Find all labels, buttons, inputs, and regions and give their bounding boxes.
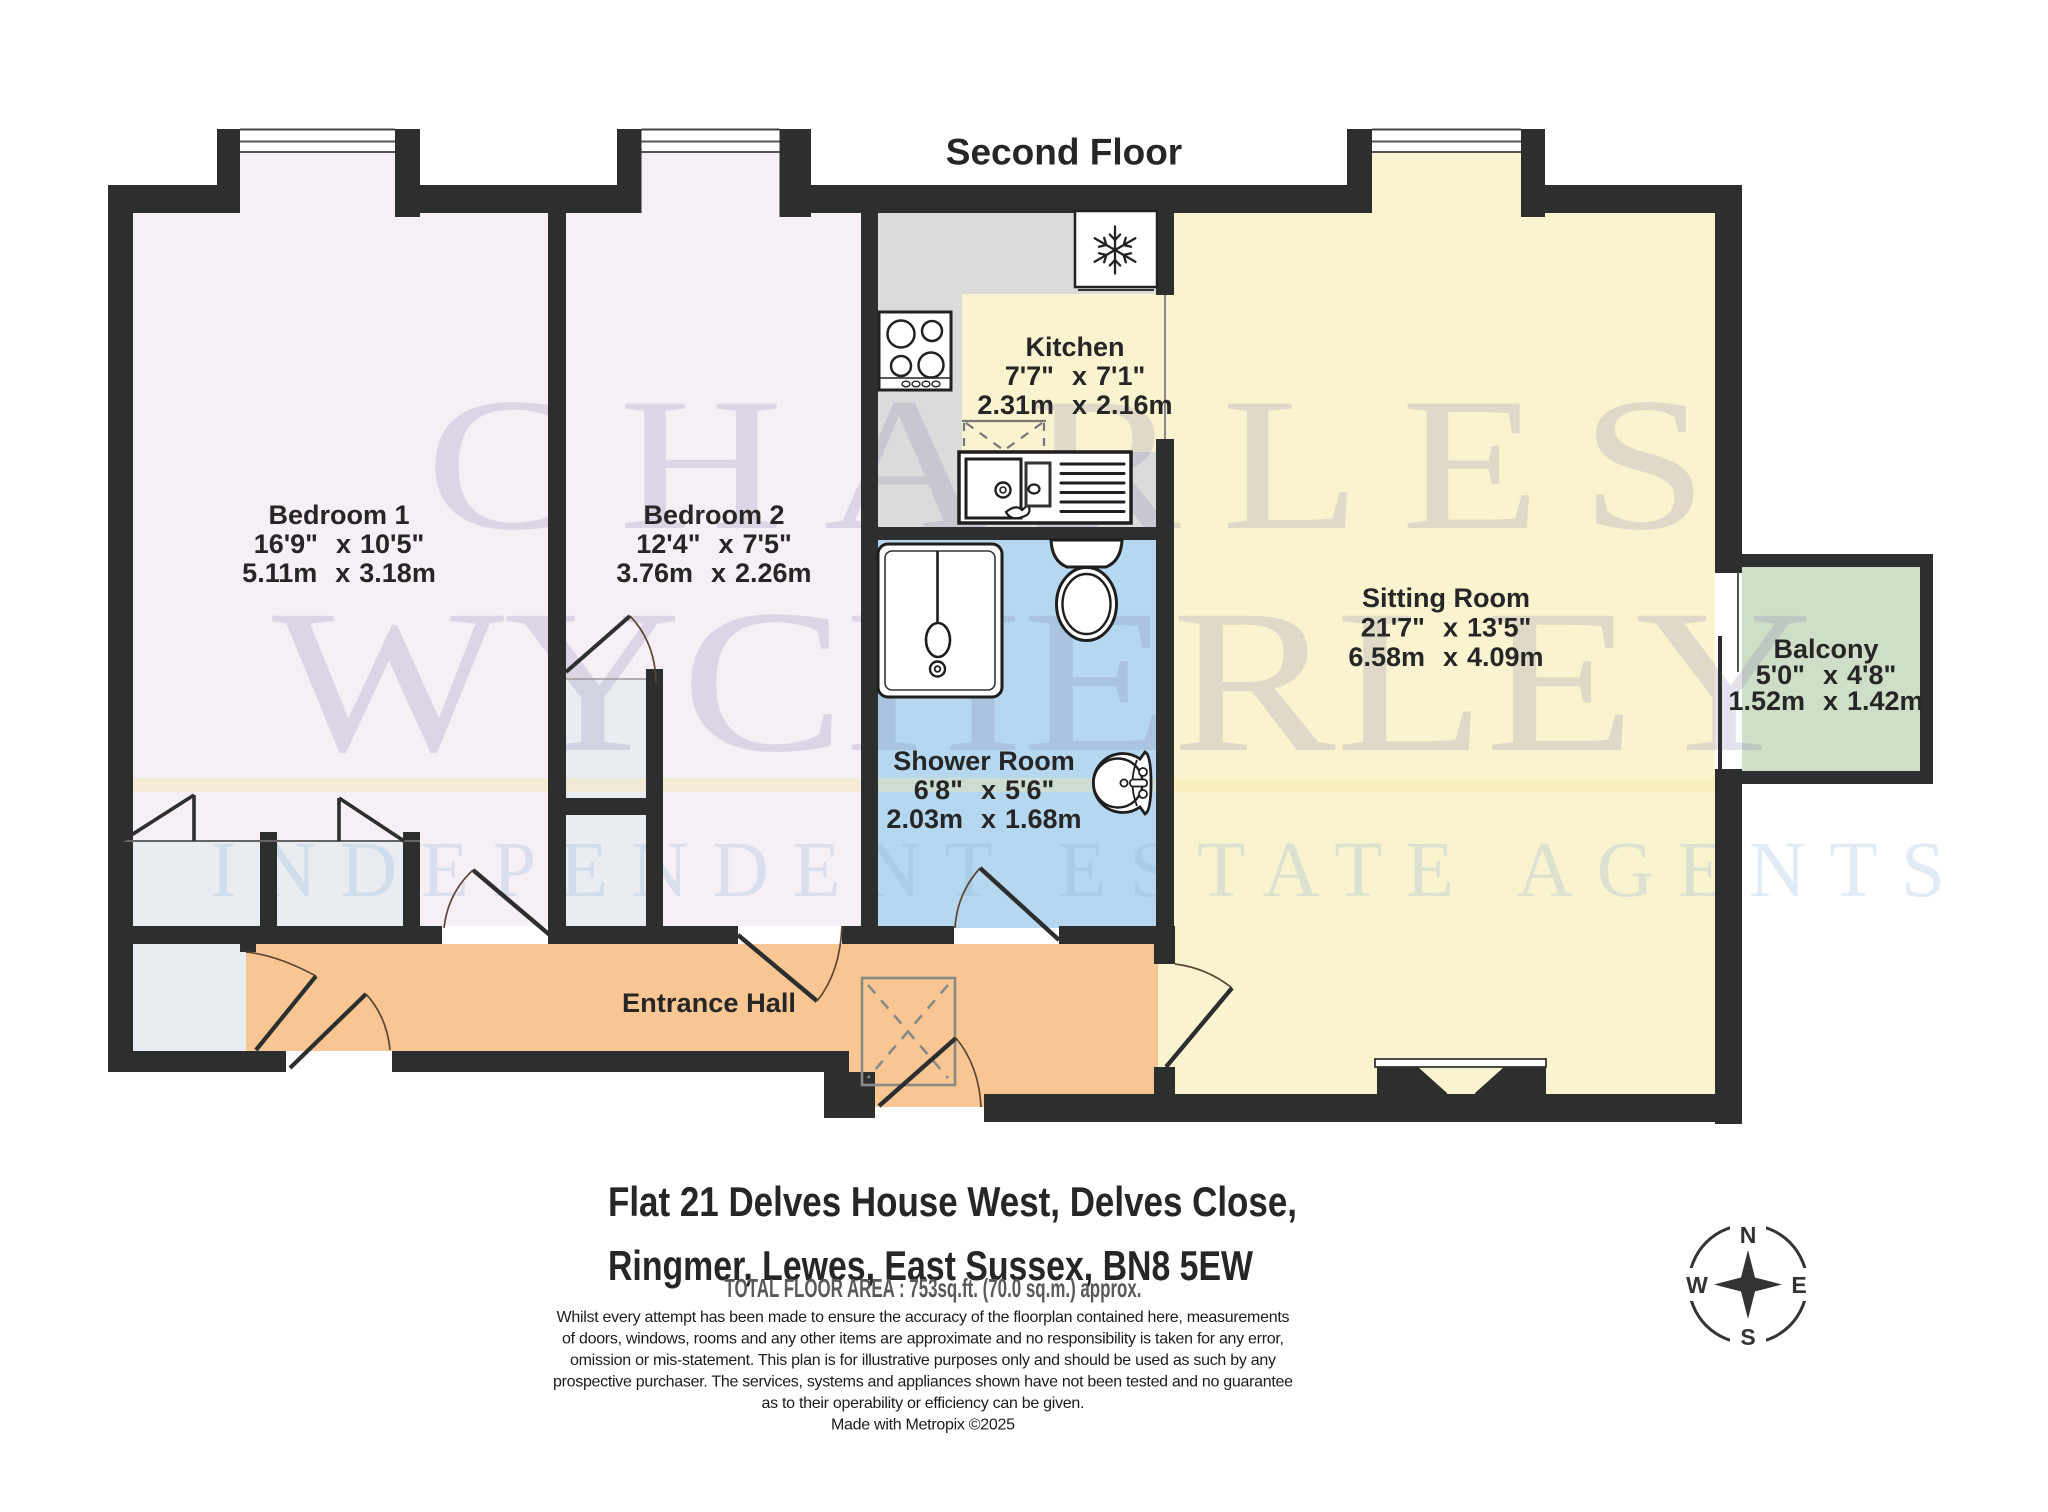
svg-text:as to their operability or eff: as to their operability or efficiency ca… bbox=[762, 1395, 1085, 1412]
svg-text:6.58m x 4.09m: 6.58m x 4.09m bbox=[1348, 642, 1543, 672]
svg-text:omission or mis-statement. Thi: omission or mis-statement. This plan is … bbox=[570, 1352, 1276, 1369]
svg-text:1.52m x 1.42m: 1.52m x 1.42m bbox=[1728, 686, 1923, 716]
svg-text:Entrance Hall: Entrance Hall bbox=[622, 988, 796, 1018]
svg-text:Made with Metropix ©2025: Made with Metropix ©2025 bbox=[831, 1416, 1015, 1433]
svg-text:2.03m x 1.68m: 2.03m x 1.68m bbox=[886, 804, 1081, 834]
svg-text:Bedroom 1: Bedroom 1 bbox=[268, 500, 409, 530]
svg-text:Bedroom 2: Bedroom 2 bbox=[643, 500, 784, 530]
svg-text:S: S bbox=[1740, 1324, 1755, 1350]
svg-text:Second Floor: Second Floor bbox=[946, 132, 1182, 173]
svg-text:21'7" x 13'5": 21'7" x 13'5" bbox=[1361, 613, 1532, 643]
svg-text:N: N bbox=[1740, 1222, 1757, 1248]
svg-text:TOTAL FLOOR AREA : 753sq.ft. (: TOTAL FLOOR AREA : 753sq.ft. (70.0 sq.m.… bbox=[725, 1273, 1142, 1303]
svg-text:12'4" x 7'5": 12'4" x 7'5" bbox=[636, 529, 792, 559]
svg-text:W: W bbox=[1686, 1272, 1708, 1298]
svg-text:7'7" x 7'1": 7'7" x 7'1" bbox=[1005, 361, 1146, 391]
svg-text:of doors, windows, rooms and a: of doors, windows, rooms and any other i… bbox=[562, 1330, 1284, 1347]
svg-text:Whilst every attempt has been: Whilst every attempt has been made to en… bbox=[557, 1309, 1290, 1326]
svg-text:6'8" x 5'6": 6'8" x 5'6" bbox=[914, 775, 1055, 805]
svg-text:prospective purchaser. The ser: prospective purchaser. The services, sys… bbox=[553, 1373, 1293, 1390]
svg-text:Shower Room: Shower Room bbox=[893, 746, 1075, 776]
svg-text:Kitchen: Kitchen bbox=[1025, 332, 1124, 362]
svg-text:Flat 21 Delves House West, Del: Flat 21 Delves House West, Delves Close, bbox=[608, 1178, 1297, 1225]
svg-text:2.31m x 2.16m: 2.31m x 2.16m bbox=[977, 390, 1172, 420]
svg-text:5.11m x 3.18m: 5.11m x 3.18m bbox=[242, 558, 436, 588]
svg-text:16'9" x 10'5": 16'9" x 10'5" bbox=[254, 529, 425, 559]
svg-text:3.76m x 2.26m: 3.76m x 2.26m bbox=[616, 558, 811, 588]
svg-text:Sitting Room: Sitting Room bbox=[1362, 583, 1530, 613]
svg-text:E: E bbox=[1791, 1272, 1806, 1298]
